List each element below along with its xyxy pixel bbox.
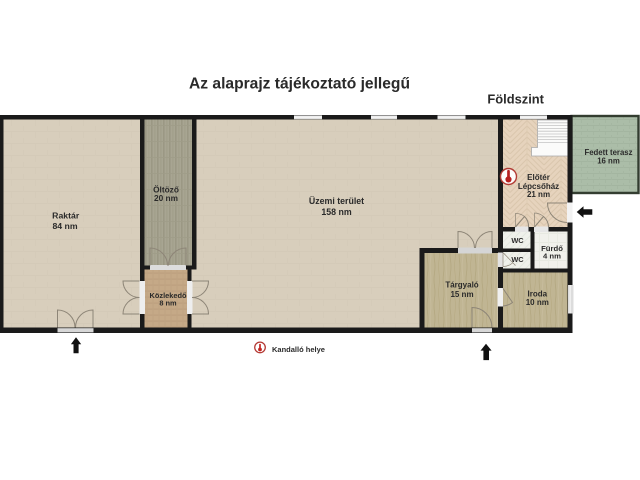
- svg-text:WC: WC: [511, 236, 524, 245]
- svg-text:Üzemi terület: Üzemi terület: [309, 196, 364, 206]
- svg-text:WC: WC: [511, 255, 524, 264]
- svg-text:84 nm: 84 nm: [52, 221, 77, 231]
- svg-text:16 nm: 16 nm: [597, 156, 620, 165]
- svg-text:Földszint: Földszint: [487, 91, 544, 106]
- svg-text:10 nm: 10 nm: [526, 298, 549, 307]
- svg-text:4 nm: 4 nm: [543, 251, 561, 260]
- svg-text:8 nm: 8 nm: [159, 298, 177, 307]
- svg-text:Tárgyaló: Tárgyaló: [445, 280, 478, 289]
- svg-text:Az alaprajz tájékoztató jelleg: Az alaprajz tájékoztató jellegű: [189, 76, 410, 93]
- svg-text:Kandalló helye: Kandalló helye: [272, 345, 325, 354]
- svg-text:15 nm: 15 nm: [450, 290, 473, 299]
- svg-text:Iroda: Iroda: [528, 290, 548, 299]
- svg-text:158 nm: 158 nm: [321, 207, 351, 217]
- svg-text:20 nm: 20 nm: [154, 193, 178, 203]
- svg-text:21 nm: 21 nm: [527, 190, 550, 199]
- svg-text:Raktár: Raktár: [52, 210, 80, 220]
